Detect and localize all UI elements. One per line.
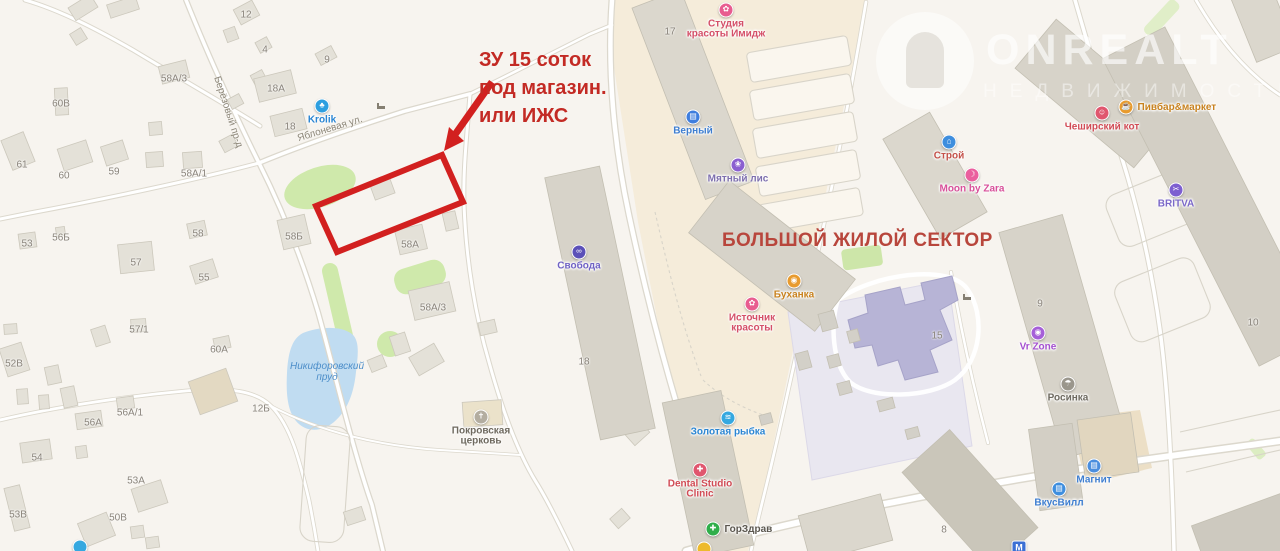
poi-label-line: ВкусВилл xyxy=(1034,499,1083,509)
watermark-logo-icon xyxy=(876,12,974,110)
vkusvill-label: ВкусВилл xyxy=(1034,499,1083,509)
water-name-line: пруд xyxy=(290,372,364,383)
poi-label-line: ГорЗдрав xyxy=(725,524,773,534)
poi-zolotaya-rybka[interactable]: ≋Золотая рыбка xyxy=(721,411,736,426)
poi-yellow-bottom-icon xyxy=(697,542,712,551)
poi-vr-zone[interactable]: ◉Vr Zone xyxy=(1031,326,1046,341)
house-number-label: 60В xyxy=(52,99,70,110)
house-number-label: 59 xyxy=(108,167,119,178)
myatny-lis-icon: ❀ xyxy=(731,158,746,173)
poi-label-line: Верный xyxy=(673,127,713,137)
poi-label-line: церковь xyxy=(452,436,510,446)
poi-dental-studio-clinic[interactable]: ✚Dental StudioClinic xyxy=(693,463,708,478)
house-number-label: 4 xyxy=(262,45,268,56)
poi-moon-by-zara[interactable]: ☽Moon by Zara xyxy=(965,168,980,183)
poi-label-line: красоты Имидж xyxy=(687,29,765,39)
stroy-icon: ⌂ xyxy=(942,135,957,150)
dental-studio-clinic-label: Dental StudioClinic xyxy=(668,480,732,499)
poi-label-line: Магнит xyxy=(1076,476,1111,486)
poi-rosinka[interactable]: ☂Росинка xyxy=(1061,377,1076,392)
poi-label-line: Krolik xyxy=(308,116,336,126)
house-number-label: 53В xyxy=(9,510,27,521)
house-number-label: 54 xyxy=(31,453,42,464)
house-number-label: 53 xyxy=(21,239,32,250)
poi-poi-yellow-bottom[interactable] xyxy=(697,542,712,551)
krolik-label: Krolik xyxy=(308,116,336,126)
britva-label: BRITVA xyxy=(1158,200,1194,210)
poi-myatny-lis[interactable]: ❀Мятный лис xyxy=(731,158,746,173)
house-number-label: 56Б xyxy=(52,233,70,244)
poi-label-line: Свобода xyxy=(557,262,600,272)
house-number-label: 56А/1 xyxy=(117,408,143,419)
map-root[interactable]: 124918А1858А/360В61605958А/15356Б5758555… xyxy=(0,0,1280,551)
vkusvill-icon: ▤ xyxy=(1052,482,1067,497)
house-number-label: 58 xyxy=(192,229,203,240)
svoboda-icon: ∞ xyxy=(572,245,587,260)
plot-annotation-line3: или ИЖС xyxy=(479,102,607,130)
pivbar-market-label: Пивбар&маркет xyxy=(1138,102,1217,112)
house-number-label: 52В xyxy=(5,359,23,370)
poi-gorzdrav[interactable]: ✚ГорЗдрав xyxy=(706,522,721,537)
poi-poi-bottom-left[interactable] xyxy=(73,540,88,551)
house-number-label: 12 xyxy=(240,10,251,21)
rosinka-label: Росинка xyxy=(1048,394,1089,404)
moon-by-zara-icon: ☽ xyxy=(965,168,980,183)
magnit-label: Магнит xyxy=(1076,476,1111,486)
poi-label-line: Moon by Zara xyxy=(939,185,1004,195)
house-number-label: 58Б xyxy=(285,232,303,243)
cheshirsky-kot-icon: ☺ xyxy=(1095,106,1110,121)
house-number-label: 58А/1 xyxy=(181,169,207,180)
house-number-label: 57/1 xyxy=(129,325,148,336)
verny-icon: ▤ xyxy=(686,110,701,125)
house-number-label: 53А xyxy=(127,476,145,487)
poi-label-line: Clinic xyxy=(668,489,732,499)
poi-verny[interactable]: ▤Верный xyxy=(686,110,701,125)
sector-annotation: БОЛЬШОЙ ЖИЛОЙ СЕКТОР xyxy=(722,230,993,252)
house-number-label: 61 xyxy=(16,160,27,171)
poi-label-line: Vr Zone xyxy=(1020,343,1057,353)
house-number-label: 9 xyxy=(324,55,330,66)
house-number-label: 60 xyxy=(58,171,69,182)
transit-stop-icon: M xyxy=(1012,541,1027,551)
verny-label: Верный xyxy=(673,127,713,137)
istochnik-krasoty-label: Источниккрасоты xyxy=(729,314,775,333)
poi-cheshirsky-kot[interactable]: ☺Чеширский кот xyxy=(1095,106,1110,121)
water-name-line: Никифоровский xyxy=(290,361,364,372)
house-number-label: 56А xyxy=(84,418,102,429)
moon-by-zara-label: Moon by Zara xyxy=(939,185,1004,195)
plot-annotation: ЗУ 15 соток под магазин. или ИЖС xyxy=(479,46,607,130)
studiya-krasoty-imidzh-label: Студиякрасоты Имидж xyxy=(687,20,765,39)
poi-label-line: красоты xyxy=(729,323,775,333)
poi-label-line: Мятный лис xyxy=(708,175,769,185)
zolotaya-rybka-label: Золотая рыбка xyxy=(691,428,766,438)
house-number-label: 18 xyxy=(284,122,295,133)
plot-annotation-line2: под магазин. xyxy=(479,74,607,102)
bukhanka-icon: ◉ xyxy=(787,274,802,289)
poi-vkusvill[interactable]: ▤ВкусВилл xyxy=(1052,482,1067,497)
svoboda-label: Свобода xyxy=(557,262,600,272)
house-number-label: 18А xyxy=(267,84,285,95)
watermark-tagline: НЕДВИЖИМОСТЬ xyxy=(983,81,1280,103)
dental-studio-clinic-icon: ✚ xyxy=(693,463,708,478)
house-number-label: 58А/3 xyxy=(161,74,187,85)
magnit-icon: ▤ xyxy=(1087,459,1102,474)
poi-bukhanka[interactable]: ◉Буханка xyxy=(787,274,802,289)
poi-label-line: BRITVA xyxy=(1158,200,1194,210)
house-number-label: 15 xyxy=(931,331,942,342)
poi-label-line: Строй xyxy=(934,152,964,162)
pokrovskaya-tserkov-label: Покровскаяцерковь xyxy=(452,427,510,446)
poi-label-line: Росинка xyxy=(1048,394,1089,404)
water-name-label: Никифоровскийпруд xyxy=(290,361,364,383)
poi-studiya-krasoty-imidzh[interactable]: ✿Студиякрасоты Имидж xyxy=(719,3,734,18)
house-number-label: 60А xyxy=(210,345,228,356)
rosinka-icon: ☂ xyxy=(1061,377,1076,392)
istochnik-krasoty-icon: ✿ xyxy=(745,297,760,312)
house-number-label: 55 xyxy=(198,273,209,284)
krolik-icon: ♣ xyxy=(315,99,330,114)
house-number-label: 58А xyxy=(401,240,419,251)
poi-label-line: Золотая рыбка xyxy=(691,428,766,438)
poi-stroy[interactable]: ⌂Строй xyxy=(942,135,957,150)
watermark-brand: ONREALT xyxy=(986,26,1233,75)
poi-krolik[interactable]: ♣Krolik xyxy=(315,99,330,114)
bukhanka-label: Буханка xyxy=(774,291,814,301)
poi-label-line: Чеширский кот xyxy=(1065,123,1139,133)
britva-icon: ✂ xyxy=(1169,183,1184,198)
poi-label-line: Пивбар&маркет xyxy=(1138,102,1217,112)
myatny-lis-label: Мятный лис xyxy=(708,175,769,185)
poi-label-line: Буханка xyxy=(774,291,814,301)
vr-zone-icon: ◉ xyxy=(1031,326,1046,341)
poi-magnit[interactable]: ▤Магнит xyxy=(1087,459,1102,474)
house-number-label: 17 xyxy=(664,27,675,38)
house-number-label: 12Б xyxy=(252,404,270,415)
house-number-label: 58А/3 xyxy=(420,303,446,314)
house-number-label: 50В xyxy=(109,513,127,524)
zolotaya-rybka-icon: ≋ xyxy=(721,411,736,426)
poi-britva[interactable]: ✂BRITVA xyxy=(1169,183,1184,198)
house-number-label: 10 xyxy=(1247,318,1258,329)
studiya-krasoty-imidzh-icon: ✿ xyxy=(719,3,734,18)
pokrovskaya-tserkov-icon: ✝ xyxy=(474,410,489,425)
house-number-label: 9 xyxy=(1037,299,1043,310)
vr-zone-label: Vr Zone xyxy=(1020,343,1057,353)
poi-istochnik-krasoty[interactable]: ✿Источниккрасоты xyxy=(745,297,760,312)
house-number-label: 57 xyxy=(130,258,141,269)
poi-transit-stop[interactable]: M xyxy=(1012,541,1027,551)
street-name-label: Берёзовый пр-д xyxy=(211,75,244,149)
gorzdrav-label: ГорЗдрав xyxy=(725,524,773,534)
poi-pokrovskaya-tserkov[interactable]: ✝Покровскаяцерковь xyxy=(474,410,489,425)
poi-svoboda[interactable]: ∞Свобода xyxy=(572,245,587,260)
cheshirsky-kot-label: Чеширский кот xyxy=(1065,123,1139,133)
poi-bottom-left-icon xyxy=(73,540,88,551)
house-number-label: 18 xyxy=(578,357,589,368)
plot-annotation-line1: ЗУ 15 соток xyxy=(479,46,607,74)
gorzdrav-icon: ✚ xyxy=(706,522,721,537)
house-number-label: 8 xyxy=(941,525,947,536)
stroy-label: Строй xyxy=(934,152,964,162)
